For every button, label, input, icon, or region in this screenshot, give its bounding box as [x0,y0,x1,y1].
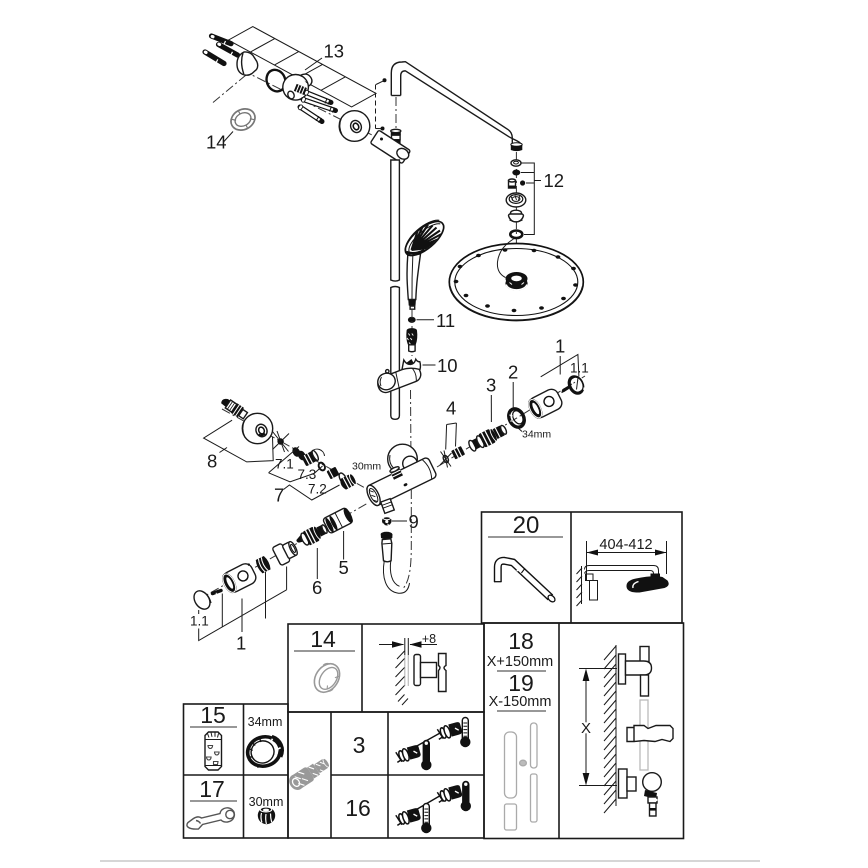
svg-text:X+150mm: X+150mm [487,654,554,670]
svg-text:30mm: 30mm [352,461,381,473]
svg-text:+8: +8 [422,632,436,646]
svg-text:8: 8 [207,451,217,472]
svg-text:6: 6 [312,577,322,598]
svg-text:10: 10 [437,355,458,376]
svg-text:7.2: 7.2 [308,482,327,497]
svg-text:3: 3 [486,375,496,396]
svg-text:20: 20 [513,512,540,539]
svg-text:17: 17 [199,776,225,802]
svg-text:1.1: 1.1 [190,614,209,629]
svg-text:11: 11 [436,310,455,331]
svg-text:14: 14 [206,132,227,153]
svg-text:15: 15 [200,702,226,728]
svg-text:18: 18 [508,628,534,654]
svg-text:1: 1 [236,633,246,654]
svg-text:X-150mm: X-150mm [489,694,552,710]
svg-text:5: 5 [339,557,349,578]
svg-text:12: 12 [544,170,565,191]
svg-text:7.3: 7.3 [298,467,317,482]
svg-text:3: 3 [353,732,366,758]
svg-text:16: 16 [345,795,371,821]
svg-text:404-412: 404-412 [599,537,652,553]
svg-text:9: 9 [409,511,419,532]
svg-text:7: 7 [274,485,284,506]
svg-text:13: 13 [324,41,345,62]
svg-text:X: X [581,720,591,737]
svg-text:2: 2 [508,362,518,383]
svg-text:4: 4 [446,398,456,419]
svg-text:34mm: 34mm [248,715,283,729]
svg-text:19: 19 [508,670,534,696]
svg-text:14: 14 [310,626,336,652]
svg-text:34mm: 34mm [522,429,551,441]
svg-text:1: 1 [555,336,565,357]
svg-text:1.1: 1.1 [570,361,589,376]
